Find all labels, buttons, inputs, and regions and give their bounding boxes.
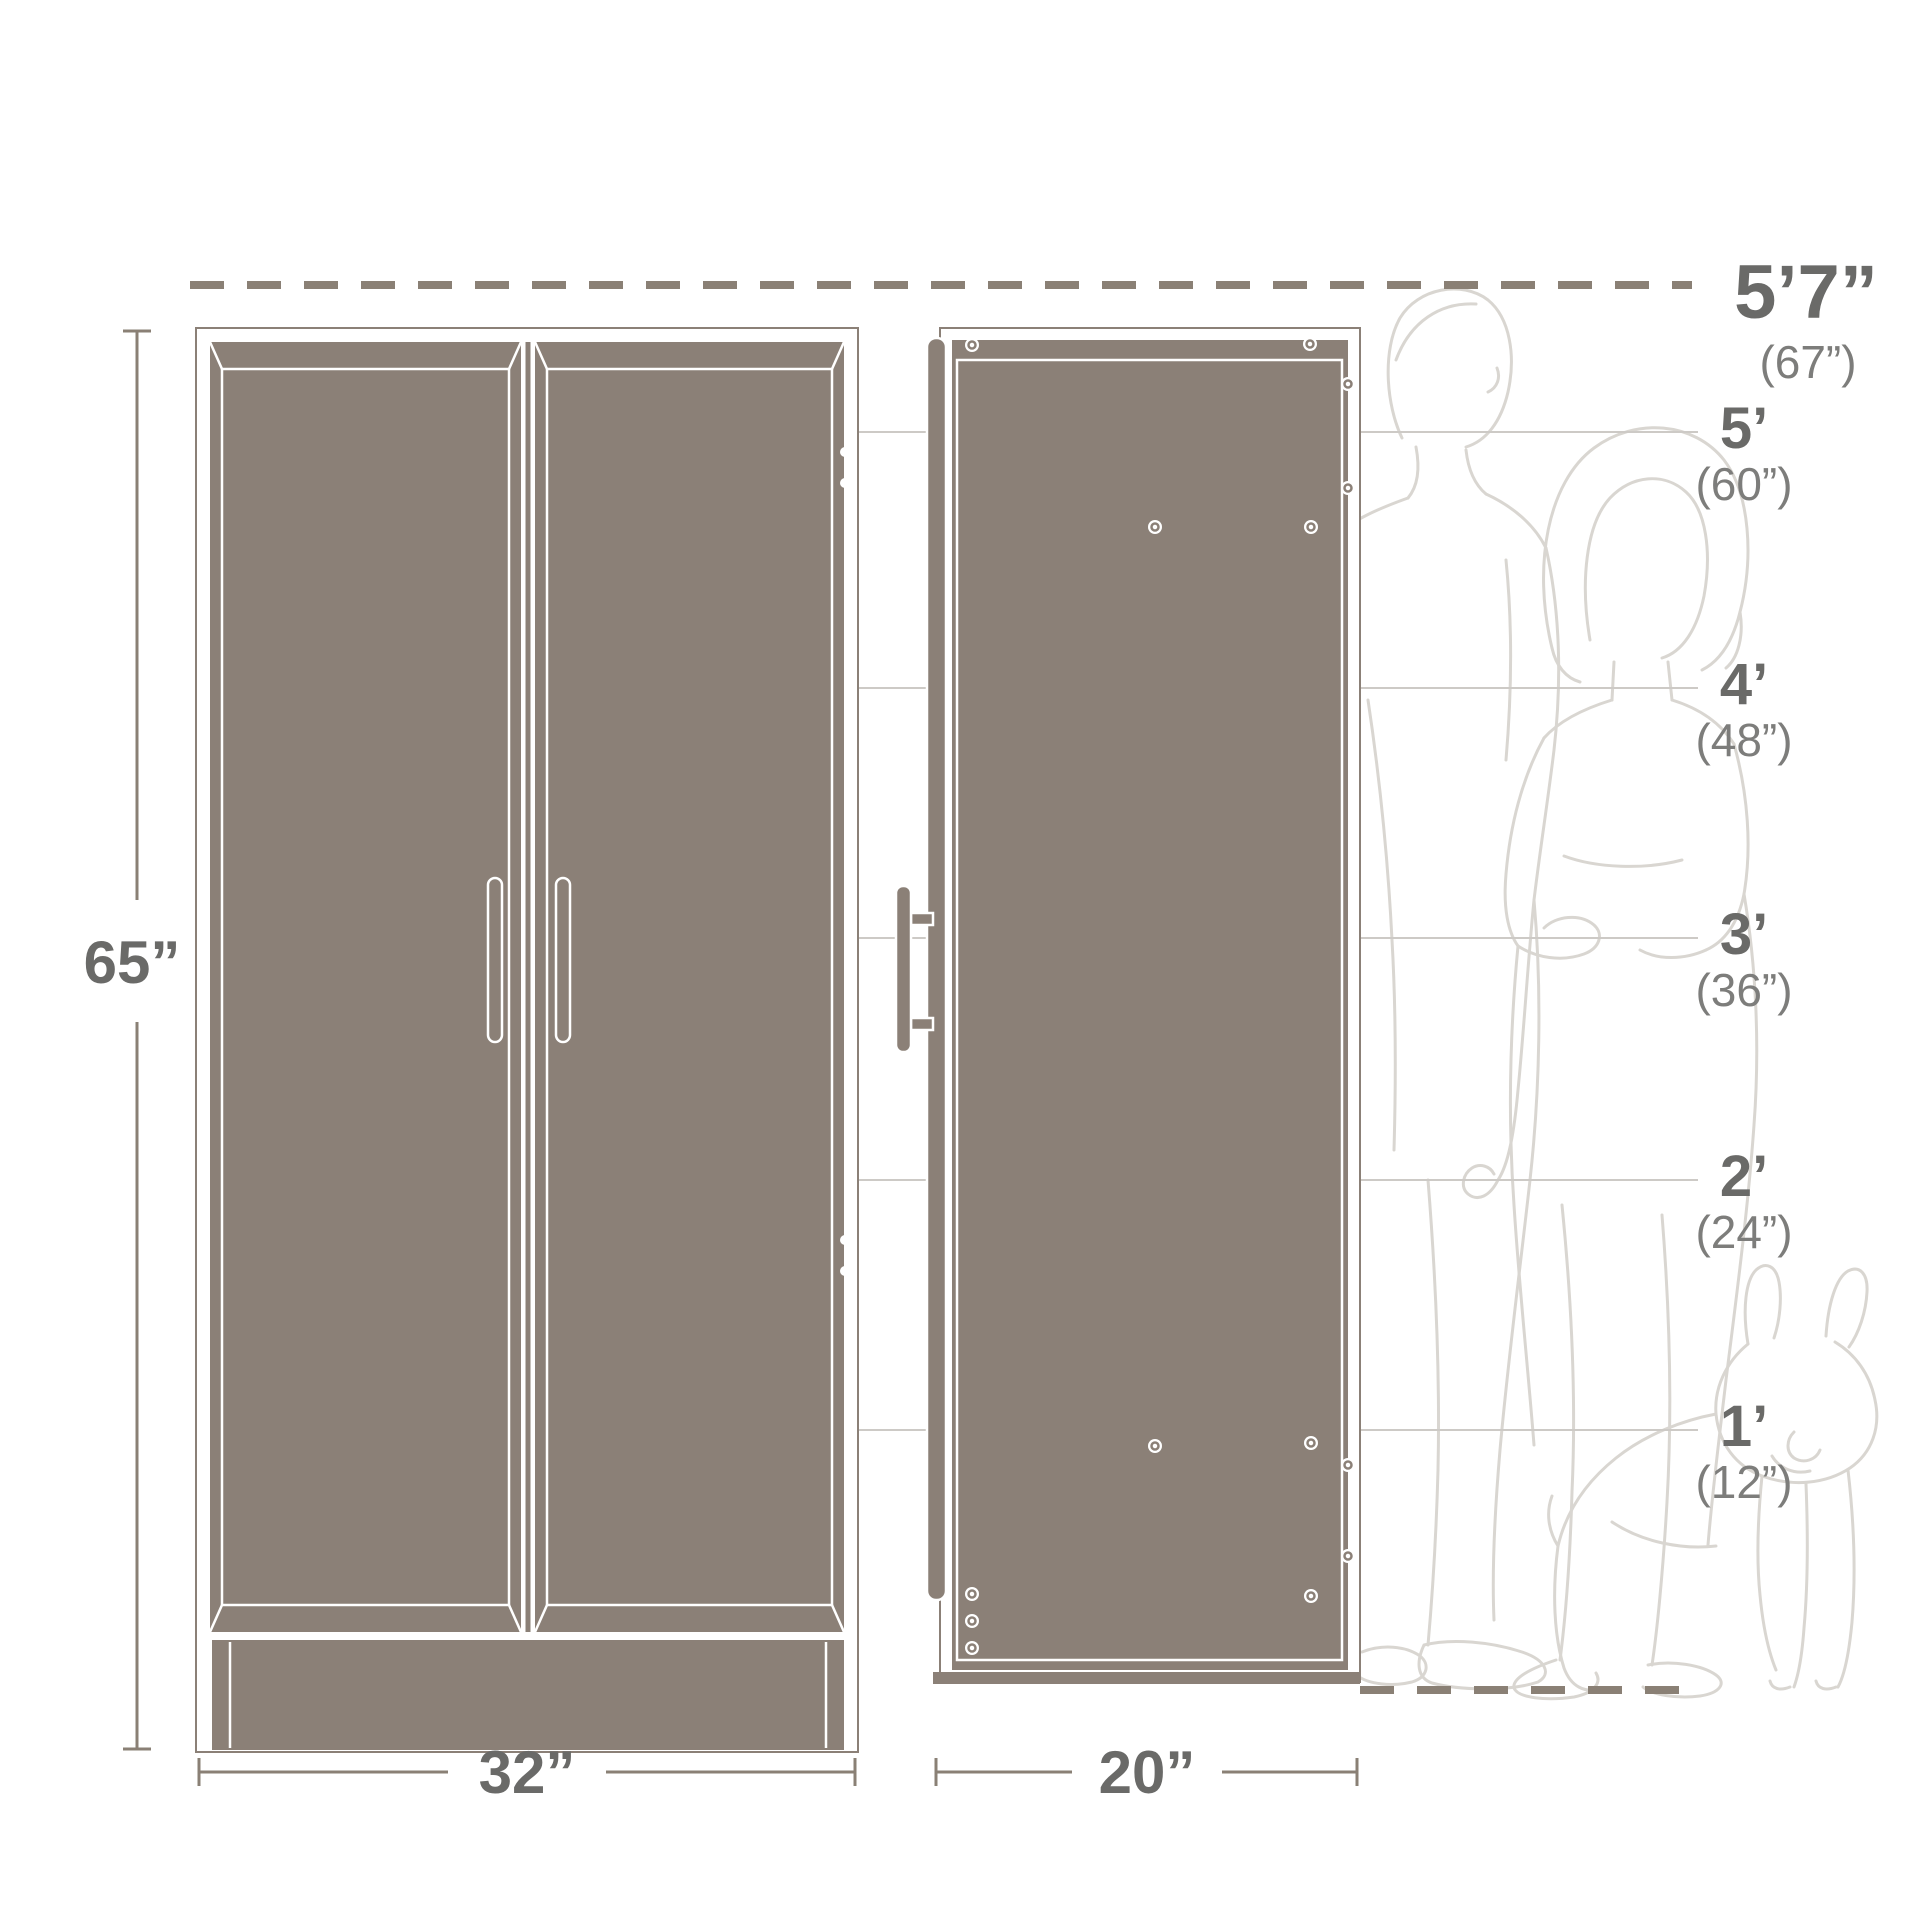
side-panel	[952, 340, 1348, 1670]
dog-ear	[1745, 1266, 1780, 1344]
height-dimension-label: 65”	[84, 929, 181, 996]
screw-hole	[1148, 1439, 1162, 1453]
screw-hole	[1303, 337, 1317, 351]
scale-label-2ft-inches: (24”)	[1695, 1206, 1792, 1258]
man-shoe	[1358, 1647, 1426, 1684]
screw-hole	[1304, 1436, 1318, 1450]
screw-hole	[1341, 1458, 1355, 1472]
screw-hole	[965, 1587, 979, 1601]
scale-label-4ft: 4’	[1720, 652, 1768, 717]
man-head	[1388, 289, 1511, 447]
screw-hole	[1304, 1589, 1318, 1603]
scale-label-5ft-inches: (60”)	[1695, 458, 1792, 510]
front-right-door-handle	[556, 878, 570, 1042]
scale-label-4ft-inches: (48”)	[1695, 714, 1792, 766]
woman-face	[1585, 479, 1707, 658]
screw-hole	[1304, 520, 1318, 534]
dog-muzzle	[1788, 1432, 1820, 1461]
woman-outline-figure	[1505, 428, 1757, 1699]
man-ear	[1488, 368, 1499, 392]
screw-hole	[1341, 481, 1355, 495]
cabinet-front-view	[196, 328, 858, 1752]
side-door-edge	[927, 338, 946, 1600]
screw-hole	[1341, 377, 1355, 391]
width-dimension-label: 32”	[479, 1739, 576, 1806]
scale-label-3ft-inches: (36”)	[1695, 964, 1792, 1016]
screw-hole	[965, 1614, 979, 1628]
cabinet-side-view	[896, 328, 1360, 1684]
screw-hole	[965, 1641, 979, 1655]
scale-label-max-feet: 5’7”	[1734, 250, 1878, 335]
cabinet-dimension-diagram: 65” 32” 20” 5’7” (67”) 5’ (60”) 4’ (48”)…	[0, 0, 1920, 1920]
height-scale: 5’7” (67”) 5’ (60”) 4’ (48”) 3’ (36”) 2’…	[1695, 250, 1877, 1508]
front-left-door-handle	[488, 878, 502, 1042]
man-hand	[1463, 1166, 1498, 1198]
dog-ear	[1826, 1269, 1867, 1347]
screw-hole	[965, 338, 979, 352]
scale-label-3ft: 3’	[1720, 902, 1768, 967]
screw-hole	[1341, 1549, 1355, 1563]
man-shoe	[1419, 1641, 1545, 1688]
front-right-door	[535, 342, 844, 1632]
scale-label-max-inches: (67”)	[1759, 336, 1856, 388]
front-base-panel	[212, 1640, 844, 1750]
front-left-door	[210, 342, 521, 1632]
man-outline-figure	[1336, 289, 1559, 1689]
front-door-gap	[526, 342, 531, 1632]
side-panel-bottom-edge	[933, 1672, 1360, 1684]
scale-label-1ft: 1’	[1720, 1394, 1768, 1459]
scale-label-5ft: 5’	[1720, 396, 1768, 461]
scale-label-1ft-inches: (12”)	[1695, 1456, 1792, 1508]
depth-dimension-label: 20”	[1099, 1739, 1196, 1806]
man-hair	[1396, 304, 1476, 360]
height-dimension	[123, 330, 151, 1750]
scale-label-2ft: 2’	[1720, 1144, 1768, 1209]
screw-hole	[1148, 520, 1162, 534]
